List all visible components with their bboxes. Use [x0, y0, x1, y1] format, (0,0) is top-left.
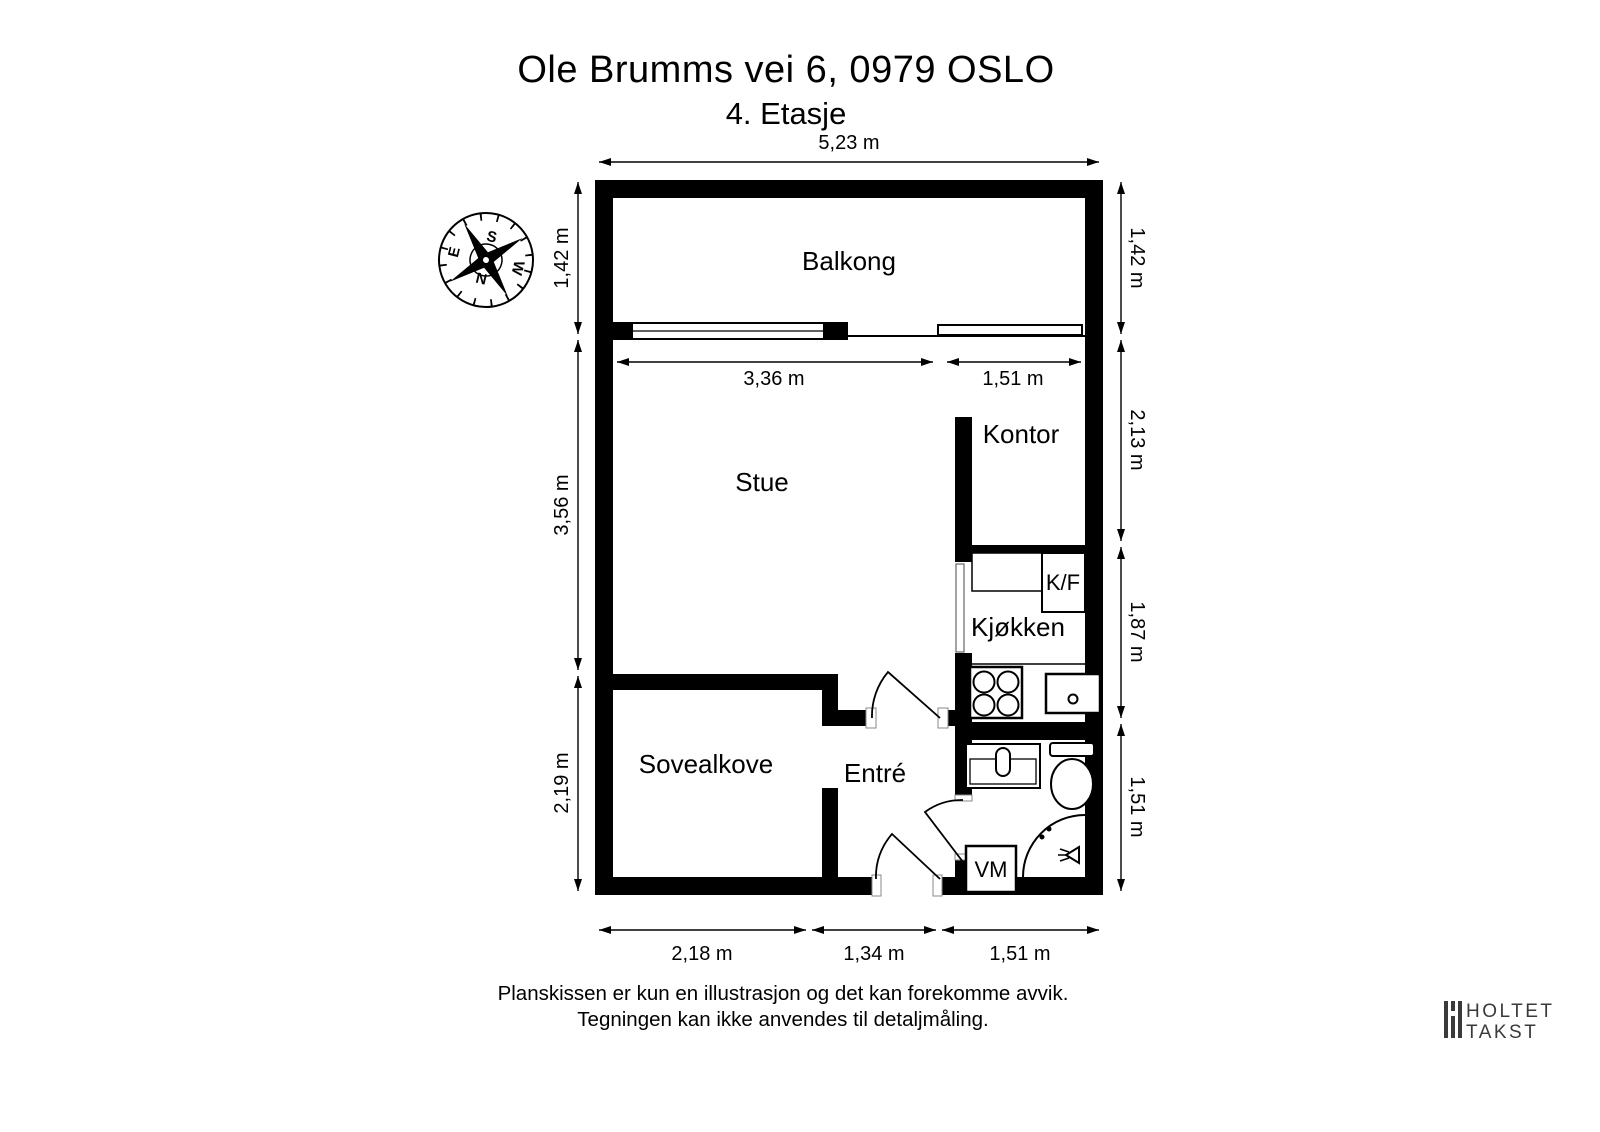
logo-text-line2: TAKST — [1466, 1022, 1538, 1043]
dim-label-right-3: 1,51 m — [1126, 776, 1148, 837]
stove-burner — [974, 695, 995, 716]
dim-label-right-1: 2,13 m — [1126, 409, 1148, 470]
holtet-takst-logo: HOLTET TAKST — [1444, 1001, 1555, 1043]
logo-bars-icon — [1444, 1001, 1462, 1038]
wall-segment — [613, 674, 822, 690]
kitchen-opening — [956, 564, 964, 652]
logo-text-line1: HOLTET — [1466, 1001, 1555, 1022]
wall-segment — [822, 788, 838, 877]
faucet-icon — [996, 748, 1010, 776]
dim-label-left-1: 3,56 m — [551, 474, 573, 535]
dim-label-bottom-1: 1,34 m — [843, 943, 904, 965]
dim-label-left-2: 2,19 m — [551, 752, 573, 813]
compass-rose: S W N E — [429, 203, 543, 317]
fixture-label-vm: VM — [975, 857, 1008, 882]
logo-bar — [1458, 1001, 1462, 1038]
logo-bar — [1451, 1001, 1455, 1011]
stue-entre-door — [872, 672, 940, 718]
bathroom-door — [925, 800, 963, 862]
dim-label-left-0: 1,42 m — [551, 227, 573, 288]
wall-segment — [595, 877, 876, 895]
page-subtitle: 4. Etasje — [726, 96, 847, 131]
floor-plan-svg: Ole Brumms vei 6, 0979 OSLO 4. Etasje S … — [0, 0, 1600, 1132]
room-label-balkong: Balkong — [802, 246, 896, 276]
windows — [632, 323, 1085, 339]
shower-head-icon — [1066, 847, 1079, 863]
stove-burner — [974, 672, 995, 693]
shower-spray-line — [1060, 849, 1069, 852]
shower-spray-line — [1060, 858, 1069, 861]
wall-segment — [595, 180, 1103, 198]
dim-label-right-2: 1,87 m — [1126, 601, 1148, 662]
room-label-stue: Stue — [735, 467, 789, 497]
logo-bar — [1451, 1016, 1455, 1038]
kitchen-counter — [972, 553, 1050, 591]
wall-segment — [955, 722, 1103, 740]
dim-label-top: 5,23 m — [818, 132, 879, 154]
door-jamb — [866, 708, 876, 728]
room-label-kjokken: Kjøkken — [971, 612, 1065, 642]
dim-label-window-1: 1,51 m — [982, 368, 1043, 390]
room-label-kontor: Kontor — [983, 419, 1060, 449]
kitchen-sink-drain — [1069, 695, 1078, 704]
door-jamb — [933, 875, 942, 896]
page-title: Ole Brumms vei 6, 0979 OSLO — [517, 49, 1054, 91]
wall-segment — [822, 710, 872, 726]
disclaimer-line-1: Planskissen er kun en illustrasjon og de… — [498, 982, 1069, 1005]
stove-burner — [998, 672, 1019, 693]
shower-arc-dot — [1040, 835, 1045, 840]
sliding-door-panel — [938, 325, 1082, 335]
room-label-sovealkove: Sovealkove — [639, 749, 773, 779]
wall-segment — [595, 180, 613, 895]
logo-bar — [1444, 1001, 1448, 1038]
wall-segment — [940, 877, 1103, 895]
shower-arc-dot — [1047, 827, 1052, 832]
entrance-door — [876, 834, 940, 879]
dim-label-window-0: 3,36 m — [743, 368, 804, 390]
wall-segment — [613, 322, 632, 340]
dim-label-bottom-0: 2,18 m — [671, 943, 732, 965]
dim-label-right-0: 1,42 m — [1126, 227, 1148, 288]
toilet-tank — [1050, 743, 1094, 756]
wall-segment — [824, 322, 848, 340]
floor-plan-page: Ole Brumms vei 6, 0979 OSLO 4. Etasje S … — [0, 0, 1600, 1132]
disclaimer-line-2: Tegningen kan ikke anvendes til detaljmå… — [577, 1008, 988, 1031]
room-label-entre: Entré — [844, 758, 906, 788]
stove-burner — [998, 695, 1019, 716]
fixture-label-kf: K/F — [1046, 570, 1080, 595]
shower-curtain-arc — [1023, 815, 1085, 877]
dim-label-bottom-2: 1,51 m — [989, 943, 1050, 965]
wall-segment — [955, 417, 972, 562]
toilet-bowl — [1051, 759, 1093, 809]
